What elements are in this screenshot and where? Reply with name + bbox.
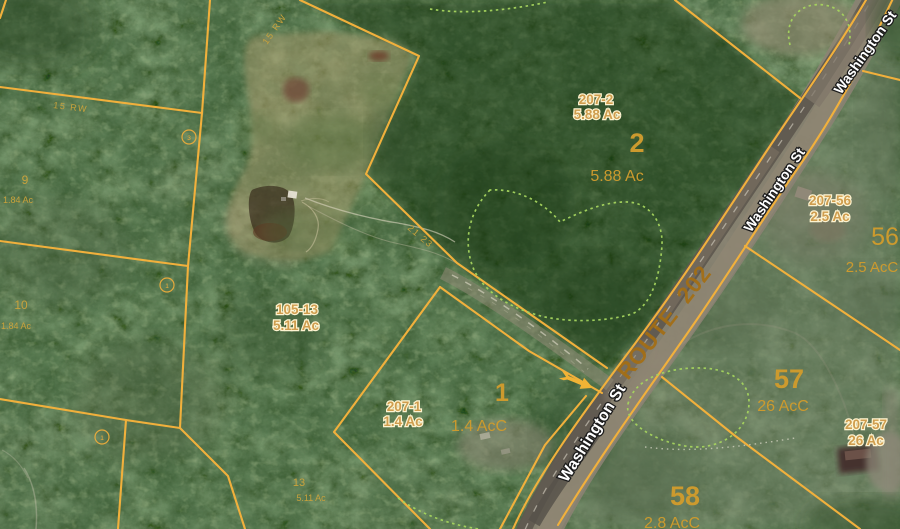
svg-text:207-56: 207-56 — [809, 193, 852, 208]
svg-text:1.84 Ac: 1.84 Ac — [3, 195, 34, 205]
svg-text:56: 56 — [871, 223, 899, 251]
svg-text:1.84 Ac: 1.84 Ac — [1, 321, 32, 331]
svg-text:5.11 Ac: 5.11 Ac — [273, 318, 320, 333]
svg-text:1: 1 — [100, 435, 104, 442]
svg-text:26 AcC: 26 AcC — [757, 398, 809, 415]
svg-text:105-13: 105-13 — [276, 302, 319, 317]
svg-text:1.4 AcC: 1.4 AcC — [451, 418, 507, 435]
svg-text:2: 2 — [629, 128, 644, 158]
svg-text:5.88 Ac: 5.88 Ac — [574, 107, 621, 122]
svg-text:207-2: 207-2 — [579, 92, 614, 107]
svg-text:1: 1 — [165, 283, 169, 290]
svg-text:2.5 AcC: 2.5 AcC — [846, 259, 899, 276]
svg-text:3: 3 — [187, 135, 191, 142]
svg-text:207-57: 207-57 — [845, 417, 887, 432]
svg-text:2.5 Ac: 2.5 Ac — [810, 209, 850, 224]
svg-text:1: 1 — [495, 379, 509, 407]
svg-text:207-1: 207-1 — [387, 399, 422, 414]
svg-text:57: 57 — [774, 364, 804, 394]
svg-text:1.4 Ac: 1.4 Ac — [383, 414, 423, 429]
svg-text:10: 10 — [14, 298, 28, 312]
svg-text:5.88 Ac: 5.88 Ac — [590, 168, 643, 185]
svg-text:26 Ac: 26 Ac — [848, 433, 884, 448]
svg-text:2.8 AcC: 2.8 AcC — [644, 515, 700, 529]
svg-text:9: 9 — [22, 173, 29, 187]
svg-text:58: 58 — [670, 481, 700, 511]
svg-text:5.11 Ac: 5.11 Ac — [296, 493, 326, 503]
svg-text:13: 13 — [293, 477, 305, 489]
